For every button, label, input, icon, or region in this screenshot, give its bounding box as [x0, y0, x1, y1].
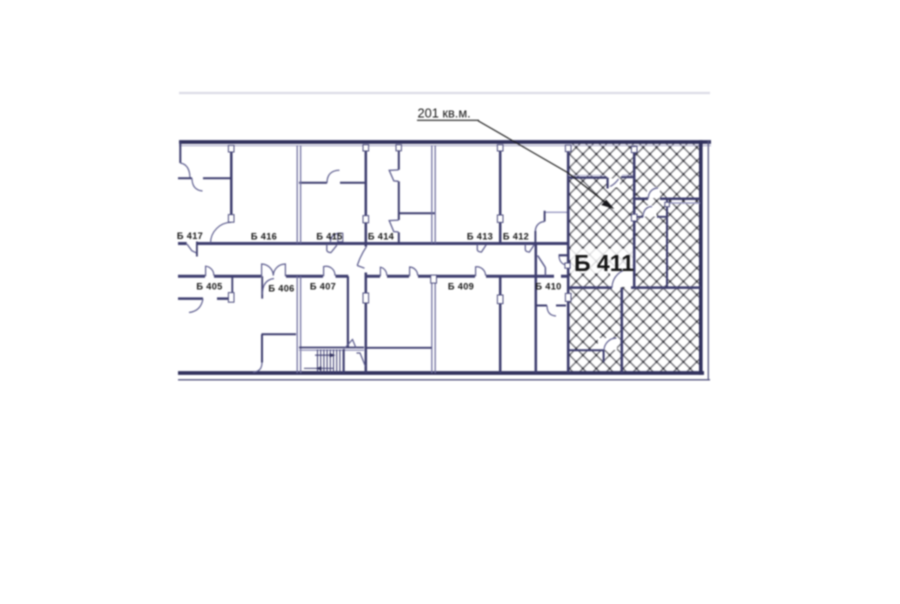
svg-text:Б 406: Б 406 — [268, 284, 294, 294]
svg-text:Б 410: Б 410 — [535, 282, 561, 292]
svg-text:Б 407: Б 407 — [310, 282, 336, 292]
svg-text:Б 416: Б 416 — [251, 232, 277, 242]
svg-text:Б 405: Б 405 — [196, 282, 222, 292]
svg-text:Б 415: Б 415 — [316, 232, 342, 242]
svg-text:Б 413: Б 413 — [467, 232, 493, 242]
svg-text:Б 411: Б 411 — [574, 250, 634, 276]
svg-text:201 кв.м.: 201 кв.м. — [418, 106, 471, 121]
svg-text:Б 417: Б 417 — [177, 231, 203, 241]
svg-text:Б 414: Б 414 — [368, 232, 395, 242]
svg-text:Б 409: Б 409 — [448, 282, 474, 292]
svg-text:Б 412: Б 412 — [503, 232, 529, 242]
